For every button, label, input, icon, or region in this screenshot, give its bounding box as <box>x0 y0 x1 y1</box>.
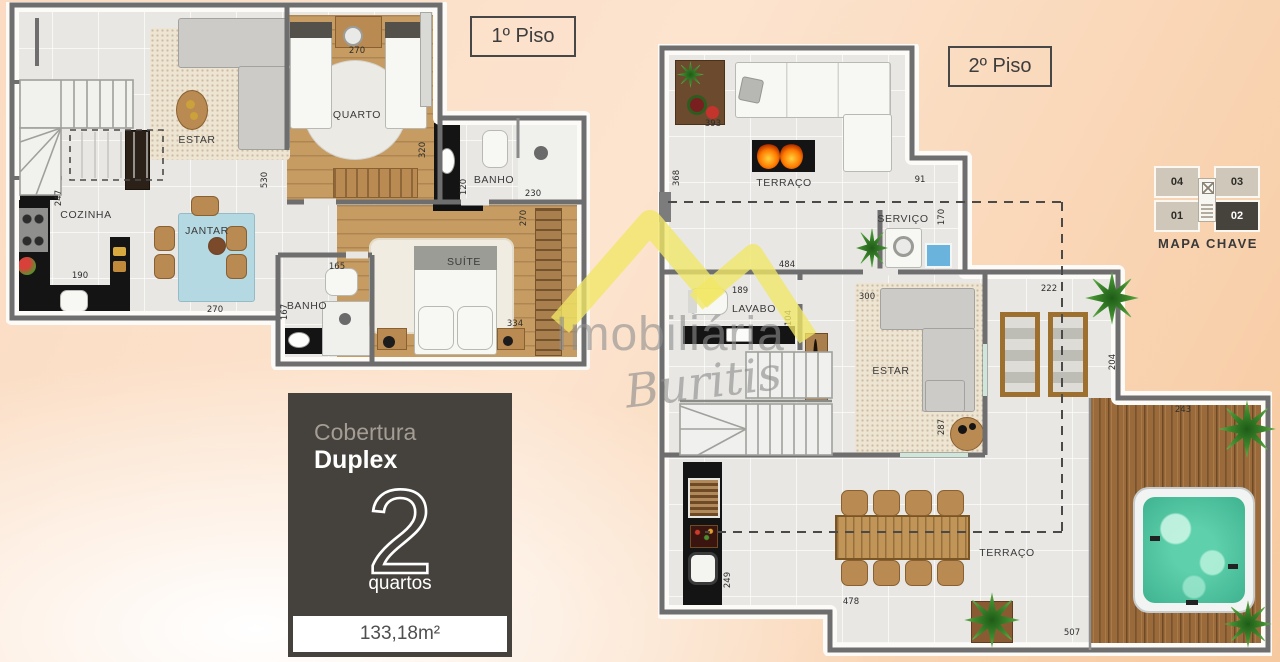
ceiling-light <box>343 26 363 46</box>
dim-320: 320 <box>418 142 428 158</box>
unit-04-label: 04 <box>1171 176 1183 188</box>
room-label-banho-top: BANHO <box>474 174 514 186</box>
chair <box>937 490 964 516</box>
room-label-jantar: JANTAR <box>185 225 229 237</box>
flame <box>780 143 803 169</box>
bowl <box>969 423 976 430</box>
plant <box>856 226 888 270</box>
chair <box>841 490 868 516</box>
floor2-title-box: 2º Piso <box>948 46 1052 87</box>
palm-plant <box>1085 271 1139 325</box>
closet <box>420 12 432 107</box>
floor1-title: 1º Piso <box>492 25 555 48</box>
room-label-cozinha: COZINHA <box>60 209 111 221</box>
grill <box>688 478 720 518</box>
flame <box>757 143 780 169</box>
room-label-banho-bottom: BANHO <box>287 300 327 312</box>
watermelon-plate <box>687 95 707 115</box>
kitchen-sink <box>60 290 88 312</box>
toilet-tank <box>688 290 697 313</box>
dim-247: 247 <box>54 190 64 206</box>
dim-484: 484 <box>779 260 795 270</box>
lamp <box>503 336 513 346</box>
jacuzzi-jet <box>1150 536 1160 541</box>
dim-300: 300 <box>859 292 875 302</box>
room-label-lavabo: LAVABO <box>732 303 776 315</box>
floor2-plan: TERRAÇO SERVIÇO LAVABO ESTAR TERRAÇO 393… <box>658 44 1272 656</box>
pillow <box>418 306 454 350</box>
dim-167: 167 <box>280 304 290 320</box>
room-label-terraco-bottom: TERRAÇO <box>979 547 1035 559</box>
terrace-sofa-chaise <box>843 114 892 172</box>
dim-204: 204 <box>1108 354 1118 370</box>
dim-91: 91 <box>915 175 926 185</box>
toilet <box>325 268 358 296</box>
dresser <box>333 168 418 198</box>
key-map-building: 04 03 01 02 <box>1152 158 1264 230</box>
barbecue-tray <box>690 525 718 548</box>
dim-170: 170 <box>937 209 947 225</box>
room-label-estar: ESTAR <box>872 365 909 377</box>
fruit-bowl <box>18 257 36 275</box>
dim-478: 478 <box>843 597 859 607</box>
bed-headboard <box>290 22 332 38</box>
unit-03-label: 03 <box>1231 176 1243 188</box>
dim-393: 393 <box>705 119 721 129</box>
chair <box>154 254 175 279</box>
coffee-table <box>176 90 208 130</box>
washer-door <box>893 236 914 257</box>
outdoor-dining-table <box>835 515 970 560</box>
key-map: 04 03 01 02 MAPA CHAVE <box>1146 152 1270 254</box>
shower-box <box>322 301 372 356</box>
bread <box>113 261 126 272</box>
room-label-estar: ESTAR <box>178 134 215 146</box>
shower-area <box>518 120 584 200</box>
single-bed <box>290 22 332 129</box>
chair <box>873 560 900 586</box>
bowl <box>190 112 198 120</box>
gourmet-sink <box>688 552 718 585</box>
tv <box>433 204 483 211</box>
jacuzzi-jet <box>1186 600 1198 605</box>
stove <box>18 208 48 252</box>
dim-270-suite: 270 <box>519 210 529 226</box>
sun-lounger <box>1048 312 1088 397</box>
dim-190: 190 <box>72 271 88 281</box>
sink <box>288 332 310 348</box>
sun-lounger <box>1000 312 1040 397</box>
unit-01-label: 01 <box>1171 210 1183 222</box>
dim-270-quarto: 270 <box>349 46 365 56</box>
cabinet <box>125 130 150 190</box>
chair <box>905 490 932 516</box>
room-label-servico: SERVIÇO <box>877 213 928 225</box>
shower-head <box>339 313 351 325</box>
jacuzzi-jet <box>1228 564 1238 569</box>
dim-120: 120 <box>459 179 469 195</box>
info-card-category: Cobertura <box>314 419 416 446</box>
lamp <box>383 336 395 348</box>
chair <box>191 196 219 216</box>
dim-249: 249 <box>723 572 733 588</box>
plant <box>964 592 1020 648</box>
key-map-unit-02: 02 <box>1214 200 1260 232</box>
sofa-chaise <box>238 66 290 150</box>
unit-02-label: 02 <box>1231 210 1243 222</box>
chair <box>226 226 247 251</box>
bedrooms-number-figure: 2 <box>340 461 460 591</box>
pillow <box>457 306 493 350</box>
key-map-unit-01: 01 <box>1154 200 1200 232</box>
page: { "floor1": { "label": "1º Piso", "rooms… <box>0 0 1280 662</box>
key-map-unit-04: 04 <box>1154 166 1200 198</box>
key-map-unit-03: 03 <box>1214 166 1260 198</box>
palm-plant <box>1224 600 1272 648</box>
bowl <box>186 100 195 109</box>
dim-189: 189 <box>732 286 748 296</box>
dim-243: 243 <box>1175 405 1191 415</box>
toilet <box>482 130 508 168</box>
plant <box>677 61 704 88</box>
bowl <box>958 425 967 434</box>
dim-530: 530 <box>260 172 270 188</box>
bedrooms-label: quartos <box>288 573 512 595</box>
floor1-plan: ESTAR QUARTO COZINHA JANTAR BANHO BANHO … <box>6 2 590 370</box>
dim-104: 104 <box>784 310 794 326</box>
dim-507: 507 <box>1064 628 1080 638</box>
room-label-quarto: QUARTO <box>333 109 381 121</box>
shower-head <box>534 146 548 160</box>
chair <box>841 560 868 586</box>
floor1-title-box: 1º Piso <box>470 16 576 57</box>
bread <box>113 247 126 256</box>
elevator-icon <box>1202 182 1214 194</box>
chair <box>226 254 247 279</box>
core-stairs-icon <box>1201 204 1213 218</box>
centerpiece <box>208 237 226 255</box>
chair <box>937 560 964 586</box>
dim-270-jantar: 270 <box>207 305 223 315</box>
palm-plant <box>1218 400 1276 458</box>
dim-368: 368 <box>672 170 682 186</box>
jacuzzi-water <box>1143 497 1245 603</box>
chair <box>873 490 900 516</box>
dim-334: 334 <box>507 319 523 329</box>
wardrobe <box>535 208 562 356</box>
side-table <box>950 417 984 451</box>
room-label-suite: SUÍTE <box>447 256 481 268</box>
chair <box>905 560 932 586</box>
floor2-title: 2º Piso <box>969 55 1032 78</box>
chair <box>154 226 175 251</box>
sink <box>439 148 455 174</box>
info-card: Cobertura Duplex 2 quartos 133,18m² <box>288 393 512 657</box>
plate <box>706 106 719 119</box>
room-label-terraco-top: TERRAÇO <box>756 177 812 189</box>
laundry-tank <box>925 243 952 268</box>
dim-287: 287 <box>937 419 947 435</box>
sofa <box>178 18 290 68</box>
area-value: 133,18m² <box>360 623 440 645</box>
fridge <box>20 178 58 200</box>
key-map-title: MAPA CHAVE <box>1146 236 1270 251</box>
sofa <box>880 288 975 330</box>
stair-cabinet-detail <box>813 339 818 395</box>
dim-222: 222 <box>1041 284 1057 294</box>
sink <box>726 328 752 342</box>
dim-165: 165 <box>329 262 345 272</box>
key-map-core <box>1198 178 1216 222</box>
dim-230: 230 <box>525 189 541 199</box>
sofa-ottoman <box>925 380 965 412</box>
